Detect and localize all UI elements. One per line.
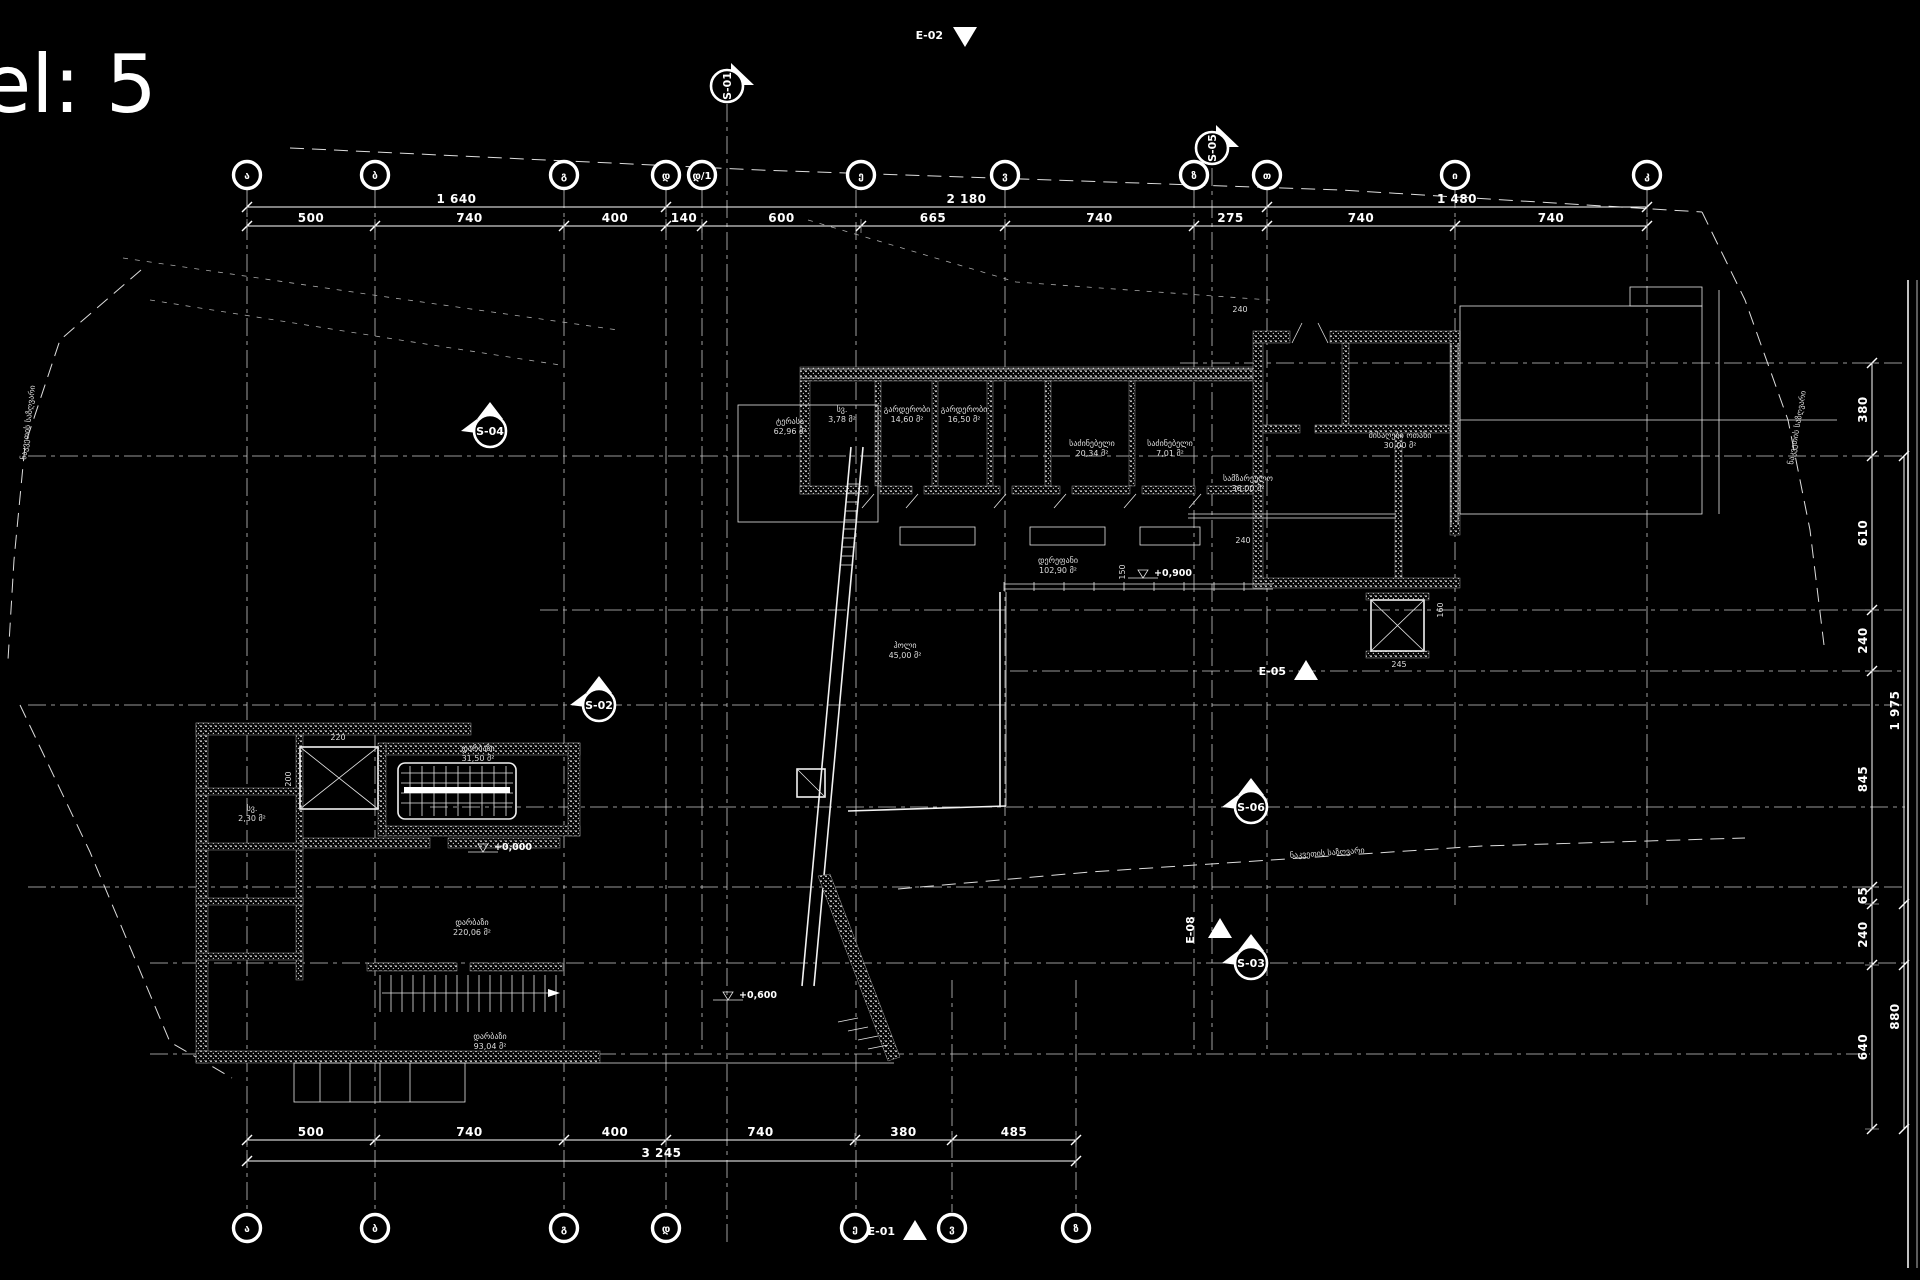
terrain-line — [123, 258, 618, 330]
boundary-label: ნაკვეთის საზღვარი — [1785, 390, 1808, 466]
E-08-section-label: E-08 — [1184, 916, 1197, 943]
dim-top-detail-label: 500 — [298, 211, 325, 225]
dim-top-overall-label: 1 480 — [1437, 192, 1477, 206]
terrace-outline — [1630, 287, 1702, 306]
S-01-section-label: S-01 — [721, 72, 734, 100]
boundary-label: ნაკვეთის საზღვარი — [1289, 845, 1364, 860]
room-area: 14,60 მ² — [891, 414, 924, 424]
dim-right-detail-label: 380 — [1856, 396, 1870, 423]
grid-bottom-bubble-label: გ — [561, 1224, 567, 1235]
terrace-outline — [1460, 306, 1702, 514]
spine-wall — [802, 447, 851, 986]
room-area: 2,30 მ² — [238, 813, 266, 823]
room-label: გარდერობი — [941, 404, 988, 414]
wall-segment — [196, 788, 303, 795]
wall-segment — [1253, 343, 1263, 588]
E-02-section-flag — [953, 27, 977, 47]
door-leaf — [862, 494, 874, 508]
level-title: el: 5 — [0, 38, 157, 131]
wall-segment — [800, 381, 810, 494]
wall-segment — [196, 843, 303, 850]
room-label: საძინებელი — [1147, 438, 1193, 448]
room-label: მისაღები ოთახი — [1369, 430, 1432, 440]
door-leaf — [1124, 494, 1136, 508]
dim-top-overall-label: 2 180 — [946, 192, 986, 206]
wall-segment — [1366, 593, 1429, 600]
dim-right-detail-label: 65 — [1856, 887, 1870, 905]
dim-bottom-detail-label: 740 — [747, 1125, 774, 1139]
dim-top-overall-label: 1 640 — [436, 192, 476, 206]
dim-bottom-overall-label: 3 245 — [641, 1146, 681, 1160]
dim-right-detail-label: 240 — [1856, 921, 1870, 948]
wall-segment — [1263, 425, 1300, 433]
wall-segment-diagonal — [818, 874, 900, 1061]
door-leaf — [1292, 323, 1302, 343]
room-area: 31,50 მ² — [462, 753, 495, 763]
dim-top-detail-label: 275 — [1217, 211, 1244, 225]
grid-bottom-bubble-label: ვ — [949, 1224, 955, 1235]
dim-right-overall-label: 1 975 — [1888, 690, 1902, 730]
wall-segment — [1045, 381, 1051, 486]
grid-bottom-bubble-label: ე — [852, 1224, 858, 1235]
detail-dimension: 200 — [284, 771, 293, 786]
E-05-section-flag — [1294, 660, 1318, 680]
wall-segment — [987, 381, 993, 486]
S-02-section-label: S-02 — [585, 699, 613, 712]
grid-bottom-bubble-label: დ — [662, 1224, 670, 1235]
S-05-section-label: S-05 — [1206, 134, 1219, 162]
stair-tread — [858, 1036, 878, 1040]
room-label: საძინებელი — [1069, 438, 1115, 448]
dim-right-overall-label: 880 — [1888, 1003, 1902, 1030]
wall-segment — [1253, 578, 1460, 588]
room-area: 93,04 მ² — [474, 1041, 507, 1051]
dim-bottom-detail-label: 500 — [298, 1125, 325, 1139]
grid-top-bubble-label: კ — [1644, 171, 1650, 182]
grid-bottom-bubble-label: ა — [244, 1224, 250, 1235]
wall-segment — [880, 486, 912, 494]
grid-top-bubble-label: დ/1 — [693, 171, 712, 182]
door-leaf — [1054, 494, 1066, 508]
dim-top-detail-label: 740 — [1086, 211, 1113, 225]
dim-top-detail-label: 665 — [920, 211, 947, 225]
wall-segment — [196, 898, 303, 905]
room-area: 16,50 მ² — [948, 414, 981, 424]
grid-top-bubble-label: ი — [1452, 171, 1458, 182]
wall-segment — [1330, 331, 1460, 343]
detail-dimension: 240 — [1232, 305, 1247, 314]
room-label: გარდერობი — [884, 404, 931, 414]
wall-segment — [367, 963, 457, 971]
grid-top-bubble-label: გ — [561, 171, 567, 182]
grid-top-bubble-label: ბ — [372, 170, 378, 182]
dim-top-detail-label: 740 — [456, 211, 483, 225]
grid-top-bubble-label: ზ — [1191, 170, 1197, 182]
site-boundary-west — [8, 270, 141, 660]
detail-dimension: 240 — [1235, 536, 1250, 545]
stair-tread — [848, 1027, 868, 1031]
wall-segment — [196, 953, 303, 960]
wall-segment — [470, 963, 563, 971]
room-label: დერეფანი — [1038, 555, 1078, 565]
stair-arrow-head — [548, 989, 560, 997]
wall-segment — [932, 381, 938, 486]
stair-tread — [838, 1018, 858, 1022]
wall-segment — [1142, 486, 1195, 494]
wall-segment — [378, 743, 386, 836]
dim-top-detail-label: 740 — [1348, 211, 1375, 225]
wall-segment — [1395, 435, 1402, 578]
room-area: 45,00 მ² — [889, 650, 922, 660]
wall-segment — [1450, 331, 1460, 535]
wall-segment — [303, 838, 430, 848]
grid-bottom-bubble-label: ბ — [372, 1223, 378, 1235]
dim-bottom-detail-label: 485 — [1001, 1125, 1028, 1139]
wall-segment — [1012, 486, 1060, 494]
grid-top-bubble-label: ა — [244, 171, 250, 182]
grid-bottom-bubble-label: ზ — [1073, 1223, 1079, 1235]
detail-dimension: 245 — [1391, 660, 1406, 669]
wall-segment — [1072, 486, 1130, 494]
room-label: სვ. — [837, 404, 848, 414]
dim-bottom-detail-label: 740 — [456, 1125, 483, 1139]
wall-segment — [924, 486, 1000, 494]
dim-top-detail-label: 600 — [768, 211, 795, 225]
dim-right-detail-label: 610 — [1856, 520, 1870, 547]
room-area: 30,00 მ² — [1384, 440, 1417, 450]
grid-top-bubble-label: ე — [858, 171, 864, 182]
dim-bottom-detail-label: 380 — [890, 1125, 917, 1139]
architectural-floor-plan: 1 6402 1801 4805007404001406006657402757… — [0, 0, 1920, 1280]
level-mark-icon — [723, 992, 733, 1000]
room-area: 62,96 მ² — [774, 426, 807, 436]
room-label: დარბაზი — [473, 1031, 506, 1041]
room-label: ჰოლი — [893, 640, 916, 650]
door-leaf — [1189, 494, 1201, 508]
room-label: დარბაზი — [455, 917, 488, 927]
terrain-line — [150, 300, 560, 365]
grid-top-bubble-label: ვ — [1002, 171, 1008, 182]
level-mark-value: +0,000 — [494, 842, 532, 853]
detail-dimension: 160 — [1436, 602, 1445, 617]
room-area: 102,90 მ² — [1039, 565, 1077, 575]
S-04-section-label: S-04 — [476, 425, 504, 438]
room-area: 220,06 მ² — [453, 927, 491, 937]
dim-bottom-detail-label: 400 — [602, 1125, 629, 1139]
E-01-section-flag — [903, 1220, 927, 1240]
dim-top-detail-label: 400 — [602, 211, 629, 225]
level-mark-value: +0,600 — [739, 990, 777, 1001]
grid-top-bubble-label: დ — [662, 171, 670, 182]
room-area: 20,34 მ² — [1076, 448, 1109, 458]
dim-right-detail-label: 640 — [1856, 1034, 1870, 1061]
floor-plan-viewer: { "title": { "text": "el: 5" }, "grid": … — [0, 0, 1920, 1280]
room-label: ტერასა — [776, 416, 804, 426]
level-mark-icon — [1138, 570, 1148, 578]
furniture-outline — [1030, 527, 1105, 545]
boundary-label: ნაკვეთის საზღვარი — [18, 385, 37, 461]
wall-segment — [196, 723, 208, 1063]
wall-segment — [1253, 331, 1290, 343]
wall-segment — [1366, 651, 1429, 658]
detail-dimension: 220 — [330, 733, 345, 742]
dim-right-detail-label: 240 — [1856, 627, 1870, 654]
E-02-section-label: E-02 — [916, 29, 943, 42]
wall-segment — [196, 1051, 600, 1063]
pool-lane — [404, 787, 510, 793]
room-area: 36,00 მ² — [1232, 483, 1265, 493]
dim-top-detail-label: 740 — [1538, 211, 1565, 225]
detail-dimension: 150 — [1118, 564, 1127, 579]
E-01-section-label: E-01 — [868, 1225, 895, 1238]
terrain-line — [808, 220, 1270, 300]
E-05-section-label: E-05 — [1259, 665, 1286, 678]
S-03-section-label: S-03 — [1237, 957, 1265, 970]
S-06-section-label: S-06 — [1237, 801, 1265, 814]
room-label: სამზარეულო — [1223, 473, 1273, 483]
door-leaf — [906, 494, 918, 508]
furniture-outline — [900, 527, 975, 545]
furniture-outline — [1140, 527, 1200, 545]
grid-top-bubble-label: თ — [1263, 171, 1271, 182]
wall-segment — [1342, 343, 1349, 425]
wall-segment — [383, 826, 580, 836]
wall-segment — [568, 743, 580, 836]
room-label: სვ. — [247, 803, 258, 813]
door-leaf — [994, 494, 1006, 508]
room-label: დარბაზი — [461, 743, 494, 753]
wall-segment — [1129, 381, 1135, 486]
room-area: 7,01 მ² — [1156, 448, 1184, 458]
dim-top-detail-label: 140 — [671, 211, 698, 225]
dim-right-detail-label: 845 — [1856, 766, 1870, 793]
room-area: 3,78 მ² — [828, 414, 856, 424]
level-mark-value: +0,900 — [1154, 568, 1192, 579]
site-boundary-middle — [898, 838, 1745, 889]
site-boundary-east — [1702, 212, 1824, 645]
door-leaf — [1318, 323, 1328, 343]
